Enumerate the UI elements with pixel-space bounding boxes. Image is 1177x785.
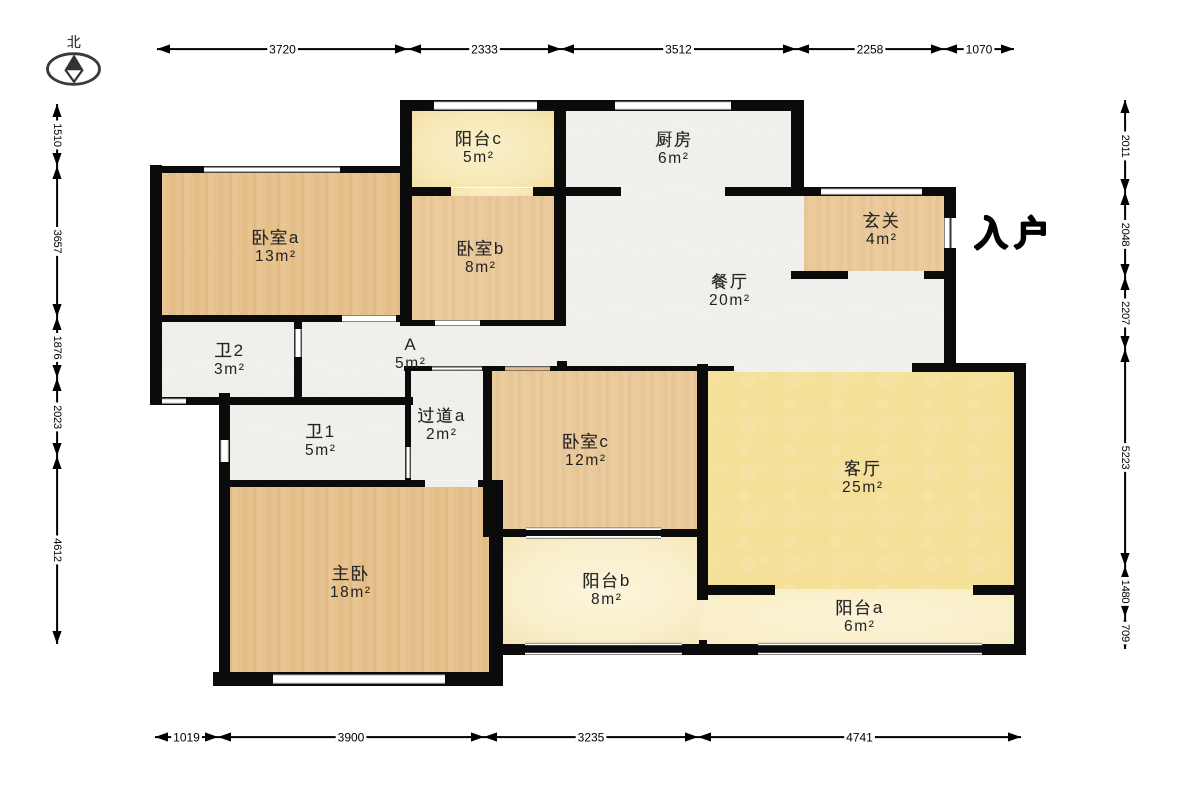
svg-text:2: 2 <box>842 479 851 496</box>
svg-text:1019: 1019 <box>173 730 200 744</box>
svg-text:²: ² <box>420 355 425 372</box>
svg-text:²: ² <box>744 292 749 309</box>
svg-text:1480: 1480 <box>1119 580 1131 604</box>
svg-text:2258: 2258 <box>857 42 884 56</box>
svg-text:²: ² <box>330 442 335 459</box>
svg-text:a: a <box>455 406 465 425</box>
svg-text:5: 5 <box>395 355 404 372</box>
svg-text:m: m <box>275 248 288 265</box>
svg-text:4: 4 <box>866 231 875 248</box>
svg-text:A: A <box>404 335 416 354</box>
svg-text:2: 2 <box>709 292 718 309</box>
svg-text:3900: 3900 <box>338 730 365 744</box>
svg-text:²: ² <box>600 452 605 469</box>
svg-text:m: m <box>436 426 449 443</box>
svg-text:3720: 3720 <box>269 42 296 56</box>
svg-text:1510: 1510 <box>51 123 63 147</box>
svg-text:m: m <box>350 584 363 601</box>
svg-text:2207: 2207 <box>1119 301 1131 325</box>
svg-text:²: ² <box>683 150 688 167</box>
svg-text:5: 5 <box>463 149 472 166</box>
svg-text:6: 6 <box>844 618 853 635</box>
svg-text:4741: 4741 <box>846 730 873 744</box>
svg-text:²: ² <box>877 479 882 496</box>
svg-text:2048: 2048 <box>1119 223 1131 247</box>
svg-text:c: c <box>599 432 608 451</box>
svg-text:m: m <box>224 361 237 378</box>
svg-text:8: 8 <box>465 259 474 276</box>
svg-text:5: 5 <box>305 442 314 459</box>
svg-text:8: 8 <box>340 584 349 601</box>
svg-text:m: m <box>876 231 889 248</box>
svg-text:²: ² <box>290 248 295 265</box>
svg-text:3: 3 <box>265 248 274 265</box>
svg-text:0: 0 <box>719 292 728 309</box>
svg-text:3: 3 <box>214 361 223 378</box>
svg-text:1: 1 <box>255 248 264 265</box>
svg-text:m: m <box>315 442 328 459</box>
svg-text:b: b <box>620 571 629 590</box>
svg-text:3235: 3235 <box>578 730 605 744</box>
svg-text:²: ² <box>891 231 896 248</box>
svg-text:5: 5 <box>852 479 861 496</box>
svg-text:m: m <box>405 355 418 372</box>
svg-text:²: ² <box>451 426 456 443</box>
svg-text:3657: 3657 <box>51 230 63 254</box>
svg-text:m: m <box>854 618 867 635</box>
svg-text:m: m <box>601 591 614 608</box>
svg-text:m: m <box>862 479 875 496</box>
svg-text:2: 2 <box>234 341 243 360</box>
svg-text:1876: 1876 <box>51 336 63 360</box>
svg-text:4612: 4612 <box>51 538 63 562</box>
svg-text:²: ² <box>239 361 244 378</box>
svg-text:²: ² <box>616 591 621 608</box>
svg-text:a: a <box>873 598 883 617</box>
svg-text:²: ² <box>365 584 370 601</box>
svg-text:b: b <box>494 239 503 258</box>
svg-text:2: 2 <box>426 426 435 443</box>
svg-text:a: a <box>289 228 299 247</box>
svg-text:m: m <box>473 149 486 166</box>
svg-text:²: ² <box>490 259 495 276</box>
svg-text:²: ² <box>488 149 493 166</box>
svg-text:2333: 2333 <box>471 42 498 56</box>
svg-text:709: 709 <box>1119 624 1131 642</box>
svg-text:m: m <box>729 292 742 309</box>
svg-text:5223: 5223 <box>1119 446 1131 470</box>
svg-text:c: c <box>492 129 501 148</box>
svg-text:8: 8 <box>591 591 600 608</box>
svg-text:m: m <box>585 452 598 469</box>
svg-text:2011: 2011 <box>1119 135 1131 158</box>
svg-text:1: 1 <box>325 422 334 441</box>
svg-text:3512: 3512 <box>665 42 692 56</box>
svg-text:1: 1 <box>565 452 574 469</box>
svg-text:6: 6 <box>658 150 667 167</box>
svg-text:2: 2 <box>575 452 584 469</box>
svg-text:1: 1 <box>330 584 339 601</box>
svg-text:2023: 2023 <box>51 405 63 429</box>
svg-text:²: ² <box>869 618 874 635</box>
svg-text:m: m <box>475 259 488 276</box>
svg-text:1070: 1070 <box>966 42 993 56</box>
svg-text:m: m <box>668 150 681 167</box>
